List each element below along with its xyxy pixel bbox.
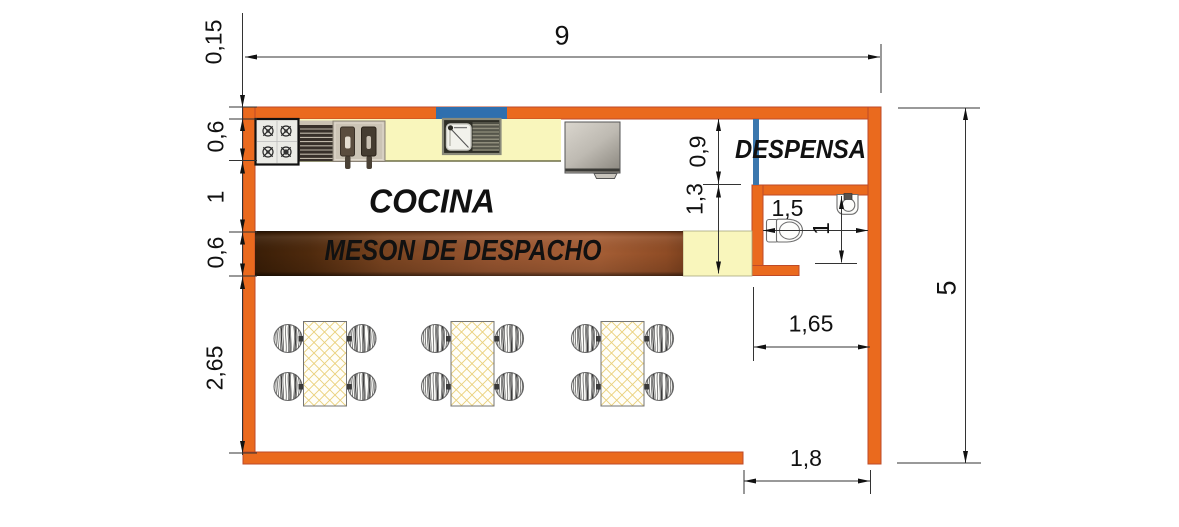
svg-text:DESPENSA: DESPENSA	[735, 134, 866, 164]
svg-text:1,8: 1,8	[790, 445, 822, 471]
svg-text:0,15: 0,15	[200, 20, 226, 65]
svg-text:2,65: 2,65	[201, 346, 227, 391]
svg-text:1,65: 1,65	[789, 310, 834, 336]
svg-text:1: 1	[202, 191, 228, 204]
svg-text:COCINA: COCINA	[369, 183, 495, 220]
svg-text:0,6: 0,6	[202, 121, 228, 153]
svg-text:0,9: 0,9	[685, 136, 711, 168]
svg-text:1,5: 1,5	[772, 195, 804, 221]
svg-text:9: 9	[554, 20, 569, 50]
svg-text:1: 1	[808, 222, 834, 235]
svg-text:0,6: 0,6	[202, 237, 228, 269]
svg-text:1,3: 1,3	[681, 183, 707, 215]
svg-text:MESON DE DESPACHO: MESON DE DESPACHO	[325, 235, 602, 267]
svg-text:5: 5	[932, 280, 962, 295]
